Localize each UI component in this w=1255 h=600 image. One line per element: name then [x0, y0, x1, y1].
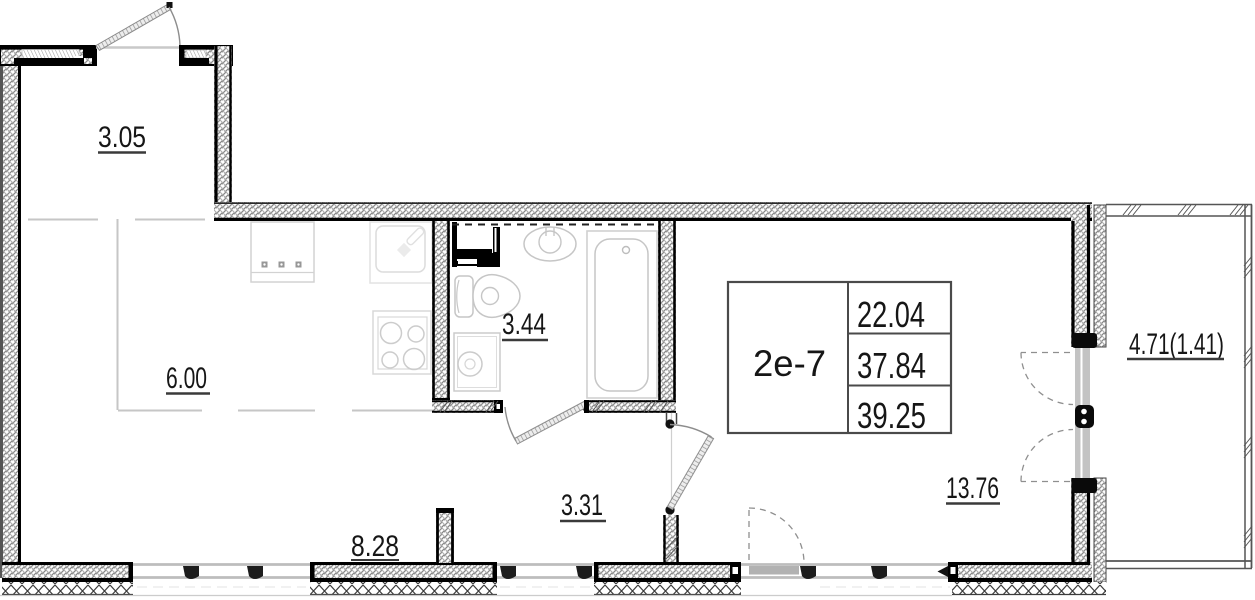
svg-text:22.04: 22.04	[857, 294, 925, 335]
svg-text:37.84: 37.84	[857, 345, 926, 386]
svg-text:13.76: 13.76	[946, 472, 999, 505]
svg-text:4.71(1.41): 4.71(1.41)	[1129, 328, 1224, 361]
svg-text:2e-7: 2e-7	[753, 343, 826, 384]
svg-text:39.25: 39.25	[857, 395, 926, 436]
svg-text:6.00: 6.00	[166, 362, 207, 395]
svg-text:8.28: 8.28	[351, 530, 399, 563]
svg-text:3.05: 3.05	[98, 121, 146, 154]
svg-text:3.44: 3.44	[502, 308, 546, 341]
svg-text:3.31: 3.31	[561, 489, 603, 522]
